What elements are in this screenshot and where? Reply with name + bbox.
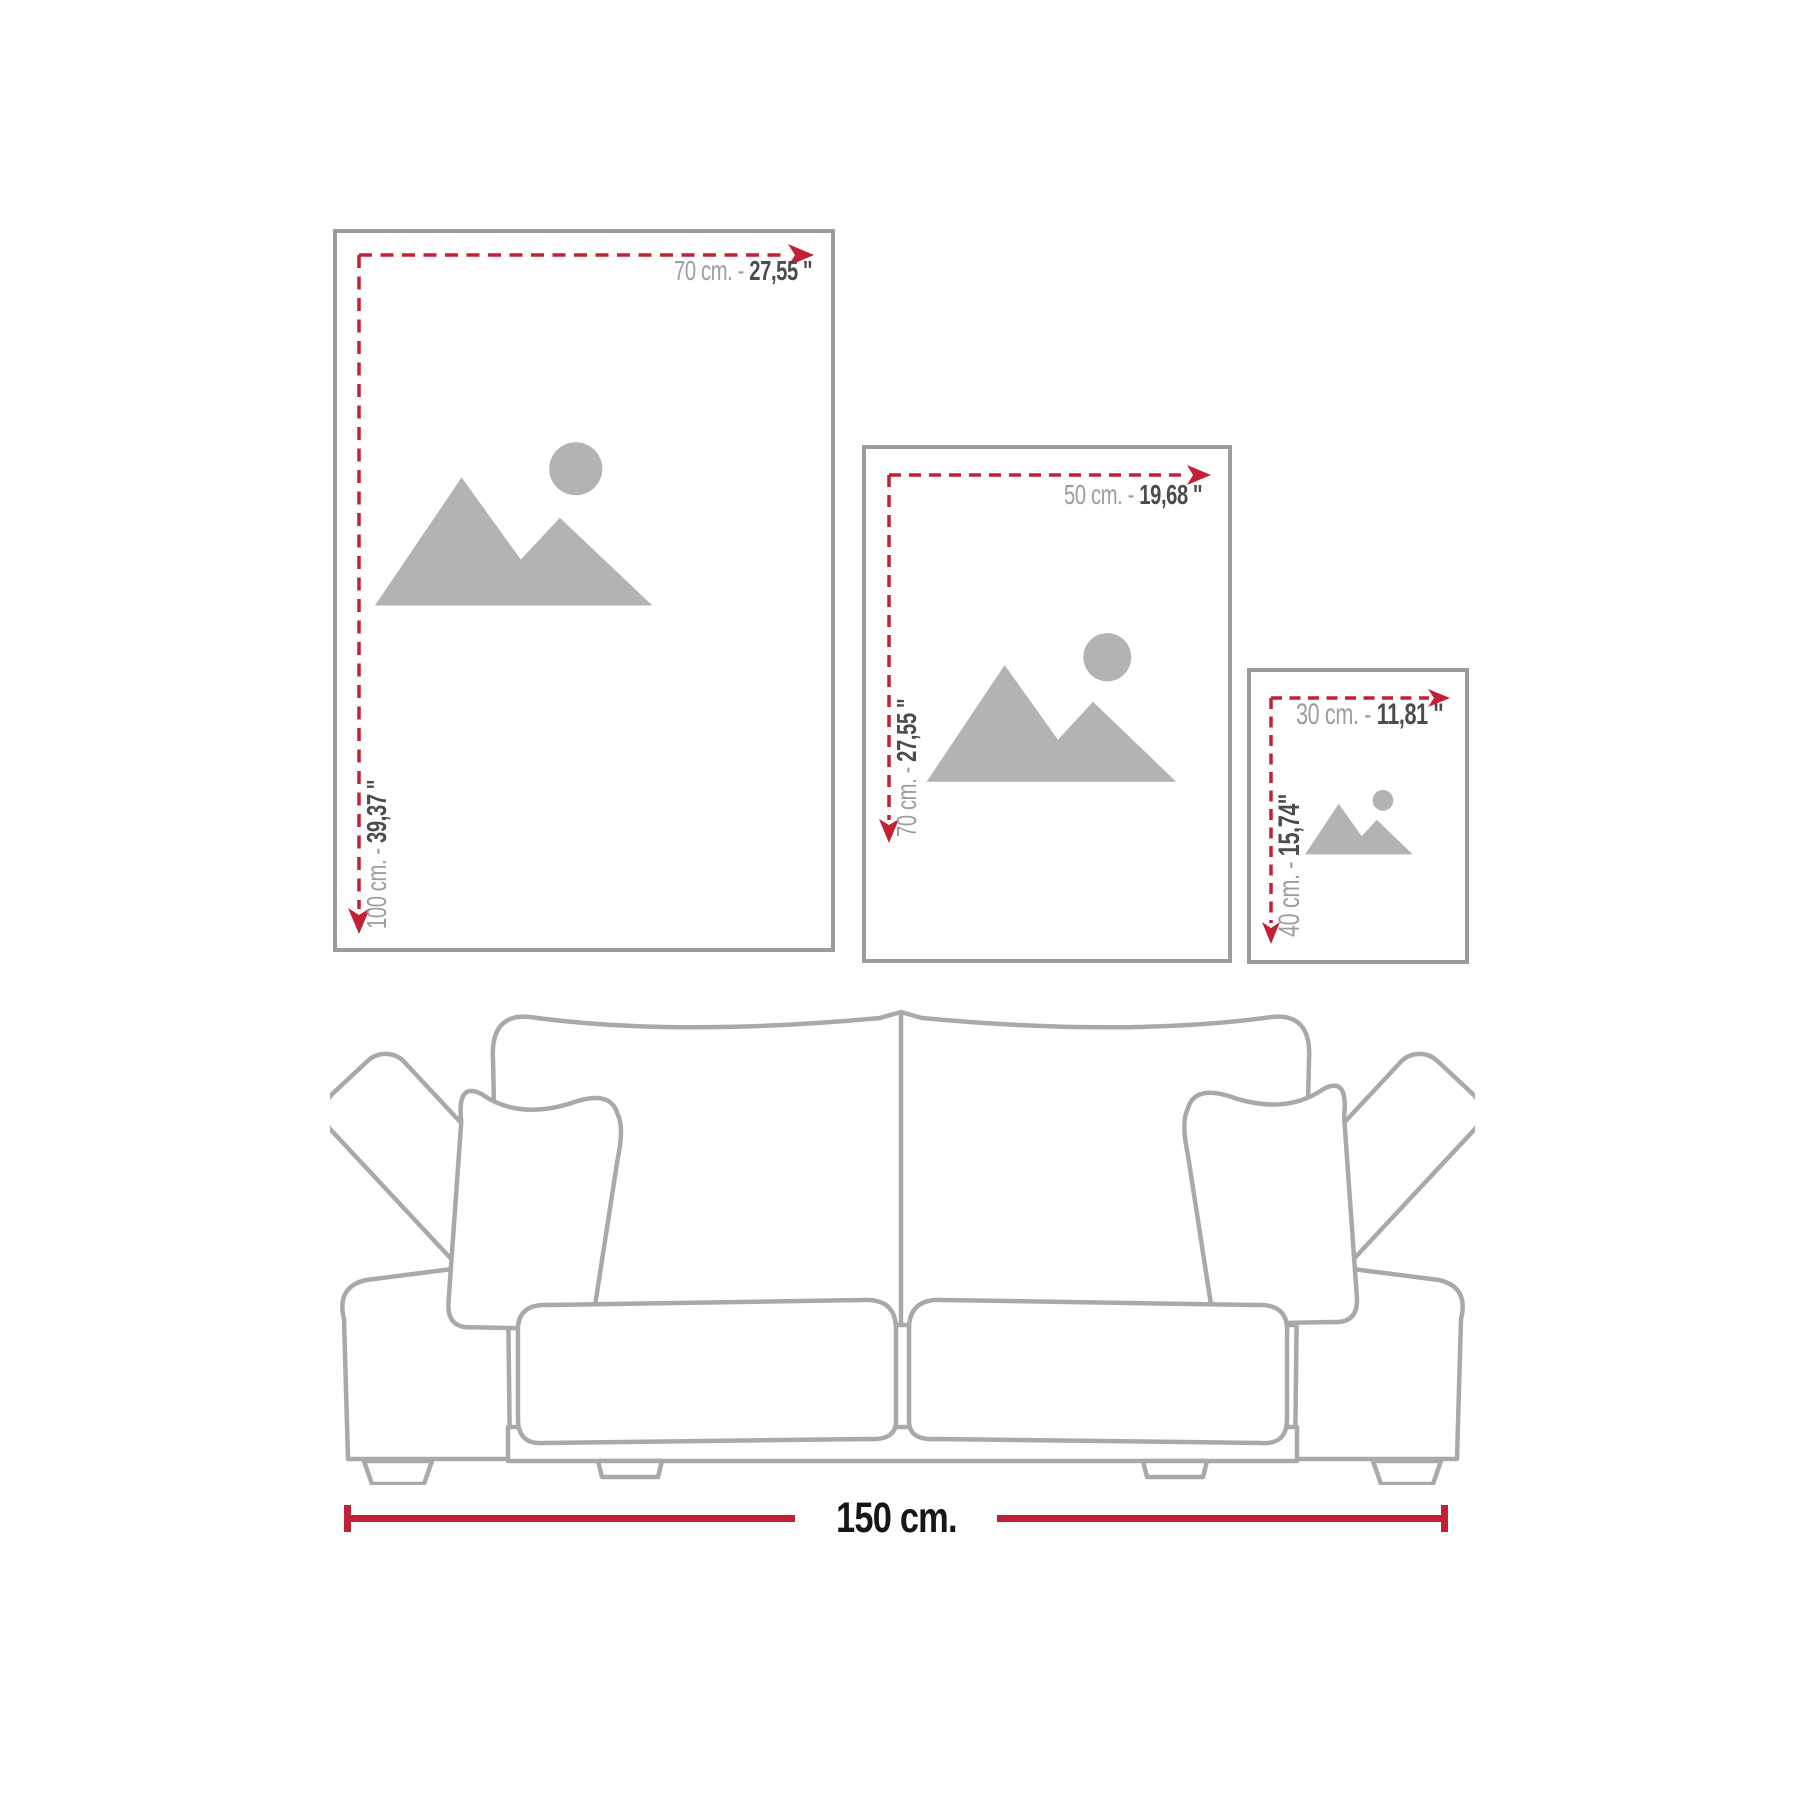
- sofa-width-value: 150 cm.: [836, 1497, 957, 1540]
- frame-large-width-label: 70 cm. - 27,55 '': [587, 257, 812, 285]
- sofa-foot: [1143, 1461, 1207, 1477]
- frame-medium-width-inches: 19,68 '': [1139, 479, 1202, 510]
- measure-end-cap-left: [344, 1505, 351, 1532]
- sofa-width-measure: 150 cm.: [344, 1504, 1448, 1532]
- measure-line-right: [997, 1515, 1441, 1522]
- frame-small-height-label: 40 cm. - 15,74'': [1275, 794, 1305, 937]
- frame-small-width-inches: 11,81 '': [1377, 698, 1443, 731]
- poster-frame-large: [333, 229, 835, 952]
- sofa-seat-cushion-right: [909, 1300, 1287, 1443]
- size-guide-diagram: 70 cm. - 27,55 '' 100 cm. - 39,37 '' 50 …: [0, 0, 1800, 1800]
- frame-small-height-inches: 15,74'': [1273, 794, 1306, 856]
- sofa-seat-cushion-left: [518, 1300, 896, 1443]
- sofa-foot: [1373, 1461, 1441, 1484]
- frame-medium-height-label: 70 cm. - 27,55 '': [893, 699, 921, 837]
- image-placeholder-icon: [1304, 789, 1416, 855]
- frame-medium-width-cm: 50 cm. -: [1064, 479, 1139, 510]
- frame-large-width-cm: 70 cm. -: [674, 255, 749, 286]
- frame-large-height-inches: 39,37 '': [361, 780, 392, 843]
- sofa-foot: [598, 1461, 662, 1477]
- sofa-foot: [364, 1461, 432, 1484]
- image-placeholder-icon: [924, 631, 1184, 783]
- measure-line-left: [351, 1515, 795, 1522]
- frame-large-height-label: 100 cm. - 39,37 '': [363, 780, 391, 929]
- measure-end-cap-right: [1441, 1505, 1448, 1532]
- frame-medium-height-cm: 70 cm. -: [891, 762, 922, 837]
- frame-large-height-cm: 100 cm. -: [361, 843, 392, 929]
- sofa-back-pillow-left: [442, 1086, 624, 1339]
- frame-small-height-cm: 40 cm. -: [1273, 856, 1306, 937]
- frame-large-width-inches: 27,55 '': [749, 255, 812, 286]
- sofa-back-pillow-right: [1181, 1081, 1363, 1334]
- sofa-illustration: [330, 985, 1475, 1485]
- frame-medium-height-inches: 27,55 '': [891, 699, 922, 762]
- frame-medium-width-label: 50 cm. - 19,68 '': [977, 481, 1202, 509]
- frame-small-width-label: 30 cm. - 11,81 '': [1227, 700, 1443, 730]
- frame-small-width-cm: 30 cm. -: [1296, 698, 1377, 731]
- image-placeholder-icon: [372, 440, 661, 607]
